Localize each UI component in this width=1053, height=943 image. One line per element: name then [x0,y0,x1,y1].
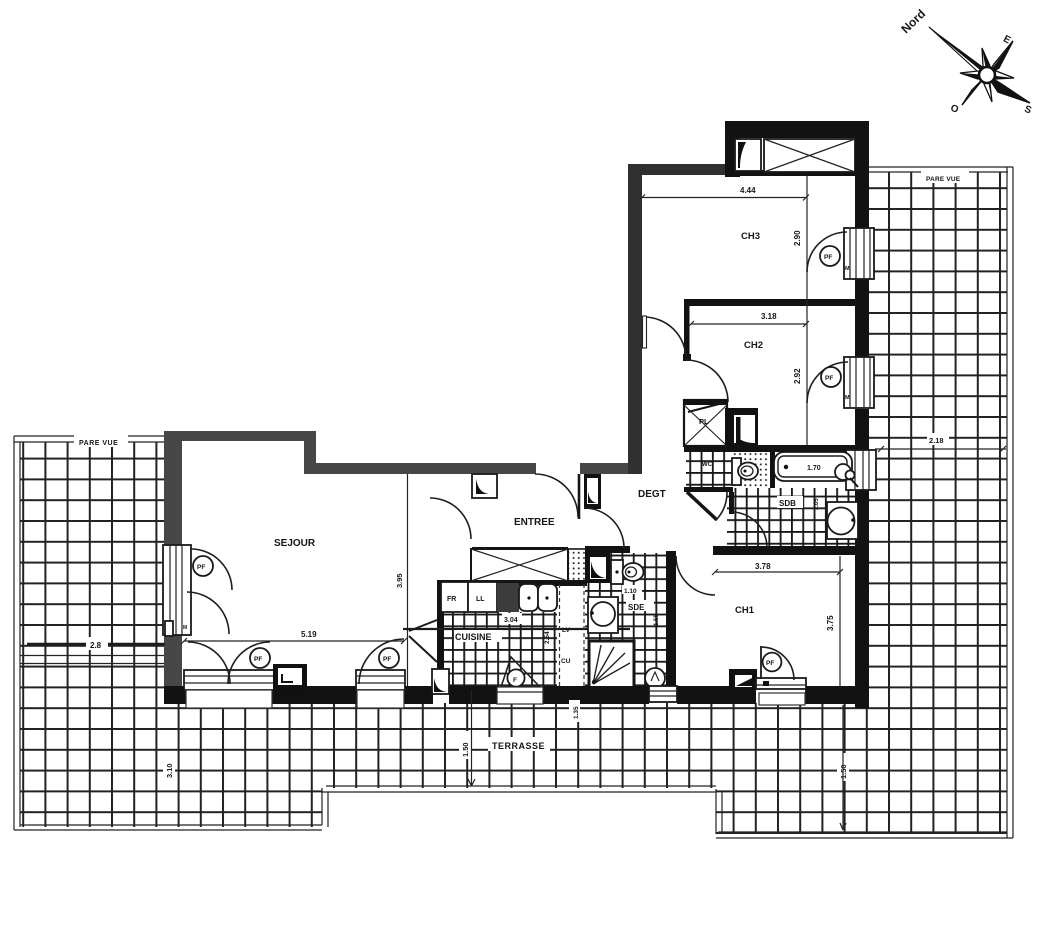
svg-text:2.05: 2.05 [814,498,820,510]
svg-text:3.95: 3.95 [395,573,404,588]
svg-text:M: M [845,266,850,272]
svg-text:CUISINE: CUISINE [455,632,492,642]
svg-text:PF: PF [197,564,205,571]
svg-text:4.44: 4.44 [740,186,756,195]
svg-text:LL: LL [476,596,485,603]
svg-text:1.50: 1.50 [461,742,470,757]
svg-text:3.18: 3.18 [761,312,777,321]
svg-text:2.54: 2.54 [544,631,551,644]
svg-text:SEJOUR: SEJOUR [274,538,316,549]
svg-text:PF: PF [254,656,262,663]
svg-text:PF: PF [383,656,391,663]
svg-text:3.10: 3.10 [165,763,174,778]
svg-text:1.35: 1.35 [573,706,580,719]
svg-text:1.55: 1.55 [654,614,660,626]
svg-text:LV: LV [562,627,570,634]
svg-text:ENTREE: ENTREE [514,517,555,528]
svg-text:PF: PF [825,375,833,382]
svg-text:FR: FR [447,596,456,603]
svg-text:M: M [183,625,187,631]
svg-text:M: M [845,395,850,401]
svg-text:TERRASSE: TERRASSE [492,741,545,751]
svg-text:CH3: CH3 [741,231,760,242]
svg-text:PARE VUE: PARE VUE [79,440,118,447]
svg-text:DEGT: DEGT [638,489,666,500]
svg-text:2.18: 2.18 [929,436,944,445]
svg-text:2.92: 2.92 [793,368,802,384]
svg-text:2.8: 2.8 [90,641,102,650]
svg-text:2.90: 2.90 [793,230,802,246]
svg-text:PARE VUE: PARE VUE [926,176,961,183]
svg-text:CH2: CH2 [744,340,763,351]
svg-text:3.75: 3.75 [826,615,835,631]
svg-text:3.04: 3.04 [504,617,518,624]
svg-text:CH1: CH1 [735,605,755,616]
svg-text:SDE: SDE [628,603,645,612]
svg-text:CU: CU [561,658,571,665]
svg-text:1.70: 1.70 [807,465,821,472]
svg-text:3.78: 3.78 [755,562,771,571]
svg-text:5.19: 5.19 [301,630,317,639]
svg-text:SDB: SDB [779,499,796,508]
svg-text:F: F [513,677,517,684]
svg-text:PF: PF [824,254,832,261]
svg-text:WC: WC [702,462,713,468]
svg-text:1.10: 1.10 [624,588,637,595]
svg-text:PL: PL [699,417,709,426]
svg-text:PF: PF [766,660,774,667]
